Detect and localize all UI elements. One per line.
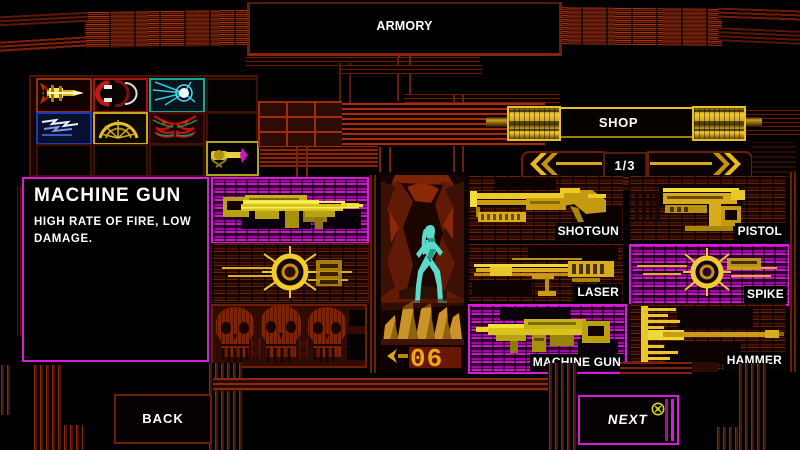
svg-text:06: 06 — [410, 344, 443, 370]
